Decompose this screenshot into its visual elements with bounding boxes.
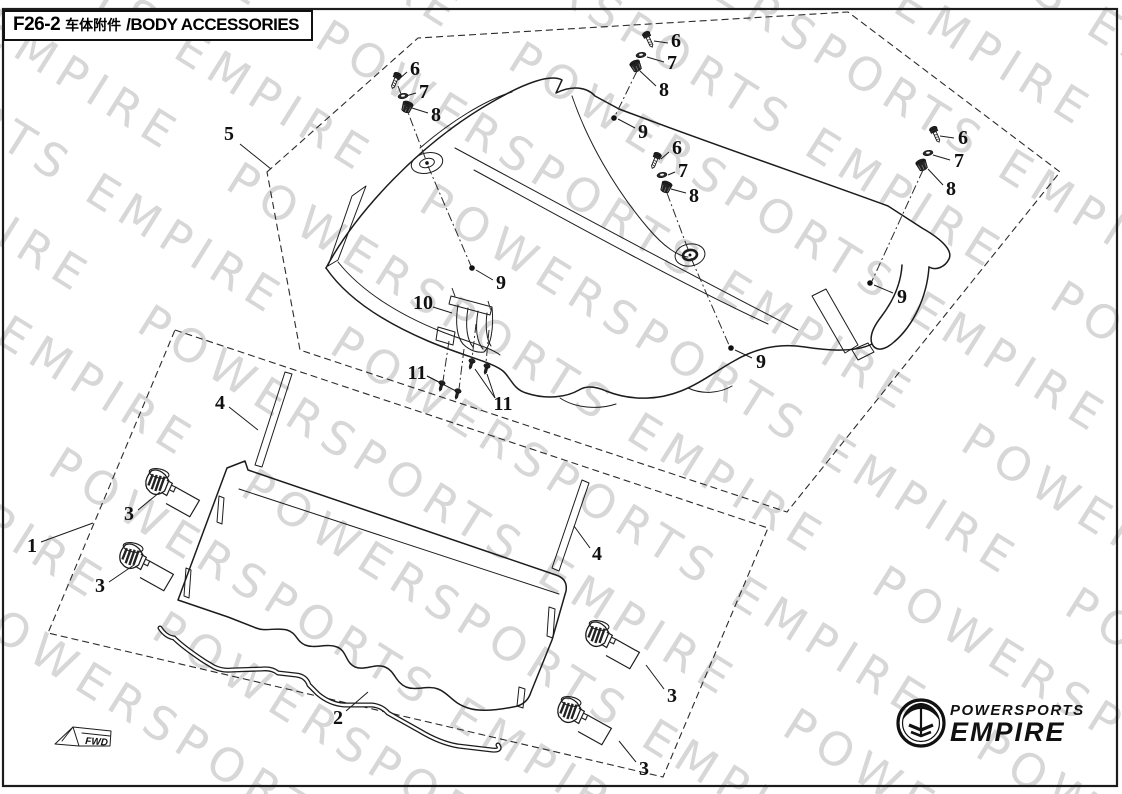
seal-strip-left [255, 372, 292, 467]
axis-line [615, 71, 637, 116]
callout-leader [668, 172, 675, 175]
callout-6: 6 [672, 137, 682, 159]
callout-leader [229, 407, 258, 430]
callout-leader [138, 492, 160, 510]
callout-6: 6 [958, 127, 968, 149]
figure-code: F26-2 [13, 14, 60, 36]
callout-3: 3 [124, 503, 134, 525]
callout-leader [618, 119, 635, 128]
callout-9: 9 [638, 121, 648, 143]
logo-text-empire: EMPIRE [950, 717, 1066, 747]
fwd-label: FWD [85, 736, 108, 749]
bolt-icon [929, 125, 943, 144]
bolt-icon [389, 71, 403, 89]
callout-leader [240, 144, 271, 169]
clamp-knob-drawing [581, 619, 644, 670]
callout-leader [640, 71, 656, 86]
windshield-slot-3 [547, 607, 555, 638]
callout-9: 9 [897, 286, 907, 308]
callout-leader [433, 307, 452, 313]
fwd-direction-marker: FWD [55, 727, 111, 749]
callout-7: 7 [954, 150, 964, 172]
seal-strip-drawing [255, 372, 589, 571]
callout-4: 4 [592, 543, 602, 565]
callout-leader [671, 189, 686, 193]
callout-9: 9 [496, 272, 506, 294]
nut-icon [915, 158, 929, 173]
callout-leader [940, 136, 954, 138]
callout-4: 4 [215, 392, 225, 414]
callout-7: 7 [667, 52, 677, 74]
figure-name-english: BODY ACCESSORIES [130, 15, 299, 34]
callout-leader [41, 523, 93, 542]
windshield-outline [178, 461, 566, 710]
callout-leader [412, 108, 428, 113]
bracket-rib-3 [477, 311, 483, 349]
callout-numbers: 5678967896789678910111144133332 [27, 30, 968, 780]
callout-leader [346, 692, 368, 711]
bracket-rib-1 [457, 305, 463, 344]
roof-right-pillar [812, 289, 858, 353]
callout-leader [476, 270, 493, 280]
seal-strip-right [552, 480, 589, 571]
washer-icon [923, 150, 934, 157]
callout-leader [654, 41, 668, 43]
callout-8: 8 [689, 185, 699, 207]
clamp-knob-drawing [141, 467, 204, 518]
roof-grommet-right [673, 242, 706, 269]
callout-3: 3 [95, 575, 105, 597]
nut-icon [400, 100, 414, 114]
callout-3: 3 [667, 685, 677, 707]
callout-3: 3 [639, 758, 649, 780]
callout-11: 11 [494, 393, 513, 415]
callout-leader [646, 665, 664, 689]
callout-leader [874, 285, 893, 293]
callout-8: 8 [946, 178, 956, 200]
nut-icon [659, 180, 673, 194]
callout-2: 2 [333, 707, 343, 729]
callout-leader [661, 152, 669, 159]
clamp-knob-drawing [115, 541, 178, 592]
roof-tab-line-1 [560, 398, 616, 407]
callout-leader [933, 155, 950, 160]
parts-diagram: 5678967896789678910111144133332 FWD POWE… [0, 0, 1122, 794]
callout-1: 1 [27, 535, 37, 557]
screw-icon [482, 363, 491, 375]
mount-point-dot [611, 115, 617, 121]
nut-icon [629, 59, 643, 74]
brand-logo: POWERSPORTS EMPIRE [898, 700, 1085, 747]
title-block: F26-2 车体附件 /BODY ACCESSORIES [3, 10, 313, 41]
bolt-icon [649, 151, 663, 169]
roof-grommet-left [409, 149, 445, 176]
washer-icon [636, 52, 647, 59]
callout-leader [619, 741, 636, 762]
axis-line [667, 193, 729, 345]
windshield-panel-drawing [178, 461, 566, 710]
windshield-slot-1 [217, 496, 224, 524]
callout-7: 7 [678, 160, 688, 182]
callout-5: 5 [224, 123, 234, 145]
callout-9: 9 [756, 351, 766, 373]
roof-windshield-line-1 [455, 148, 798, 330]
callout-6: 6 [671, 30, 681, 52]
bracket-top-plate [449, 296, 492, 315]
washer-icon [657, 172, 668, 179]
catalog-page: POWERSPORTS EMPIRE POWERSPORTS EMPIRE PO… [0, 0, 1122, 794]
figure-name-en: /BODY ACCESSORIES [126, 15, 299, 35]
mount-point-dot [867, 280, 873, 286]
callout-leader [574, 526, 590, 548]
bolt-icon [642, 30, 656, 49]
axis-lines [398, 71, 923, 389]
axis-line [872, 170, 923, 281]
callout-11: 11 [408, 362, 427, 384]
mount-point-dot [728, 345, 734, 351]
callout-leader [928, 169, 943, 185]
callout-7: 7 [419, 81, 429, 103]
figure-name-zh: 车体附件 [65, 15, 121, 35]
roof-tab-line-2 [688, 386, 732, 392]
roof-tab [852, 343, 874, 360]
fwd-arrow-inner [62, 727, 73, 741]
callout-10: 10 [413, 292, 433, 314]
fwd-arrow-head [55, 727, 79, 746]
screw-icon [467, 358, 476, 370]
callout-leader [109, 565, 134, 582]
callout-8: 8 [431, 104, 441, 126]
clamp-knob-drawing [553, 695, 616, 746]
callout-6: 6 [410, 58, 420, 80]
grab-handle-drawing [436, 296, 493, 352]
callout-leader [647, 57, 664, 62]
callout-8: 8 [659, 79, 669, 101]
windshield-top-inner-edge [239, 489, 559, 594]
mount-point-dot [469, 265, 475, 271]
